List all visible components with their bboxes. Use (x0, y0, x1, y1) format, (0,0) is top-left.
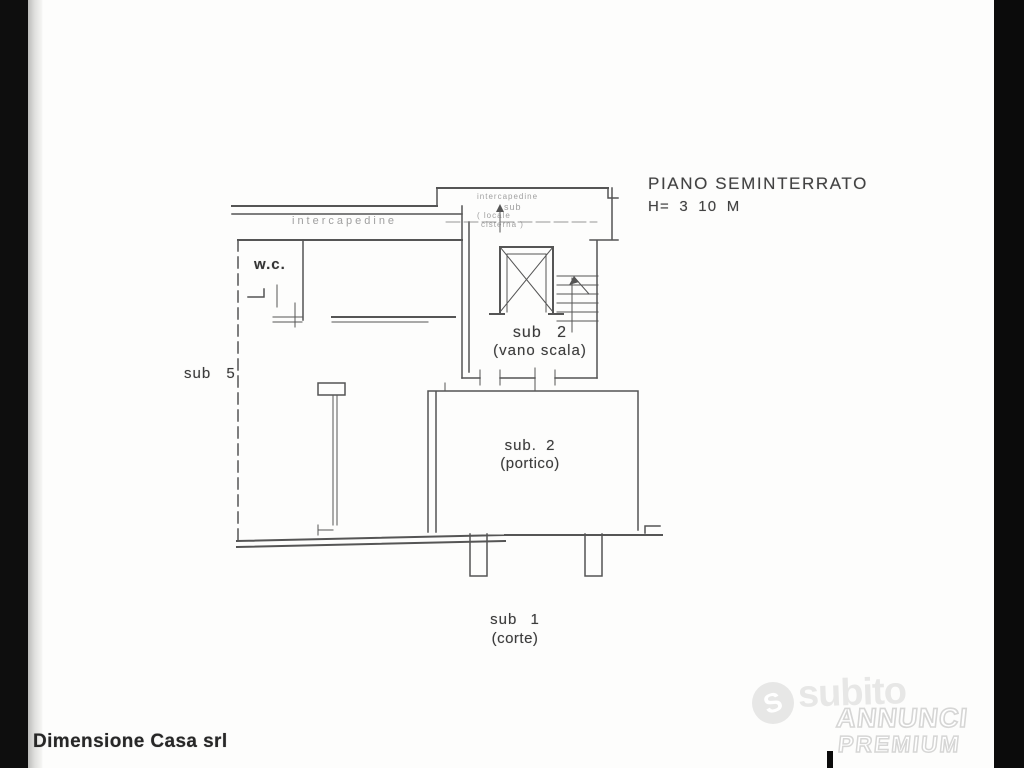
room-label-corte-name: (corte) (440, 630, 590, 647)
badge-line-premium: PREMIUM (813, 731, 986, 758)
room-label-corte: sub 1 (corte) (440, 611, 590, 647)
scanned-floorplan-page: PIANO SEMINTERRATO H= 3 10 M intercapedi… (0, 0, 1024, 768)
room-label-vano-scala-number: sub 2 (458, 324, 622, 342)
footer-company-name: Dimensione Casa srl (33, 731, 228, 753)
subito-logo-icon: S (752, 682, 794, 724)
room-label-portico-name: (portico) (450, 455, 610, 472)
subito-watermark: S subito ANNUNCI PREMIUM (738, 670, 990, 766)
label-intercapedine-top: intercapedine (477, 192, 538, 201)
room-label-vano-scala: sub 2 (vano scala) (458, 324, 622, 359)
label-intercapedine-left: intercapedine (292, 215, 397, 227)
subito-logo-letter: S (760, 685, 787, 720)
badge-line-annunci: ANNUNCI (816, 703, 989, 734)
room-label-portico-number: sub. 2 (450, 437, 610, 454)
label-locale-cisterna-line2: ( locale (477, 211, 511, 220)
plan-height-note: H= 3 10 M (648, 198, 740, 215)
room-label-portico: sub. 2 (portico) (450, 437, 610, 472)
plan-title: PIANO SEMINTERRATO (648, 174, 868, 194)
scan-artifact-mark (827, 751, 833, 768)
room-label-sub5: sub 5 (184, 365, 236, 382)
premium-badge: ANNUNCI PREMIUM (813, 703, 989, 758)
floor-plan-drawing (0, 0, 1024, 768)
room-label-wc: w.c. (254, 256, 286, 273)
room-label-vano-scala-name: (vano scala) (458, 342, 622, 359)
label-locale-cisterna-line3: cisterna ) (481, 220, 524, 229)
room-label-corte-number: sub 1 (440, 611, 590, 628)
